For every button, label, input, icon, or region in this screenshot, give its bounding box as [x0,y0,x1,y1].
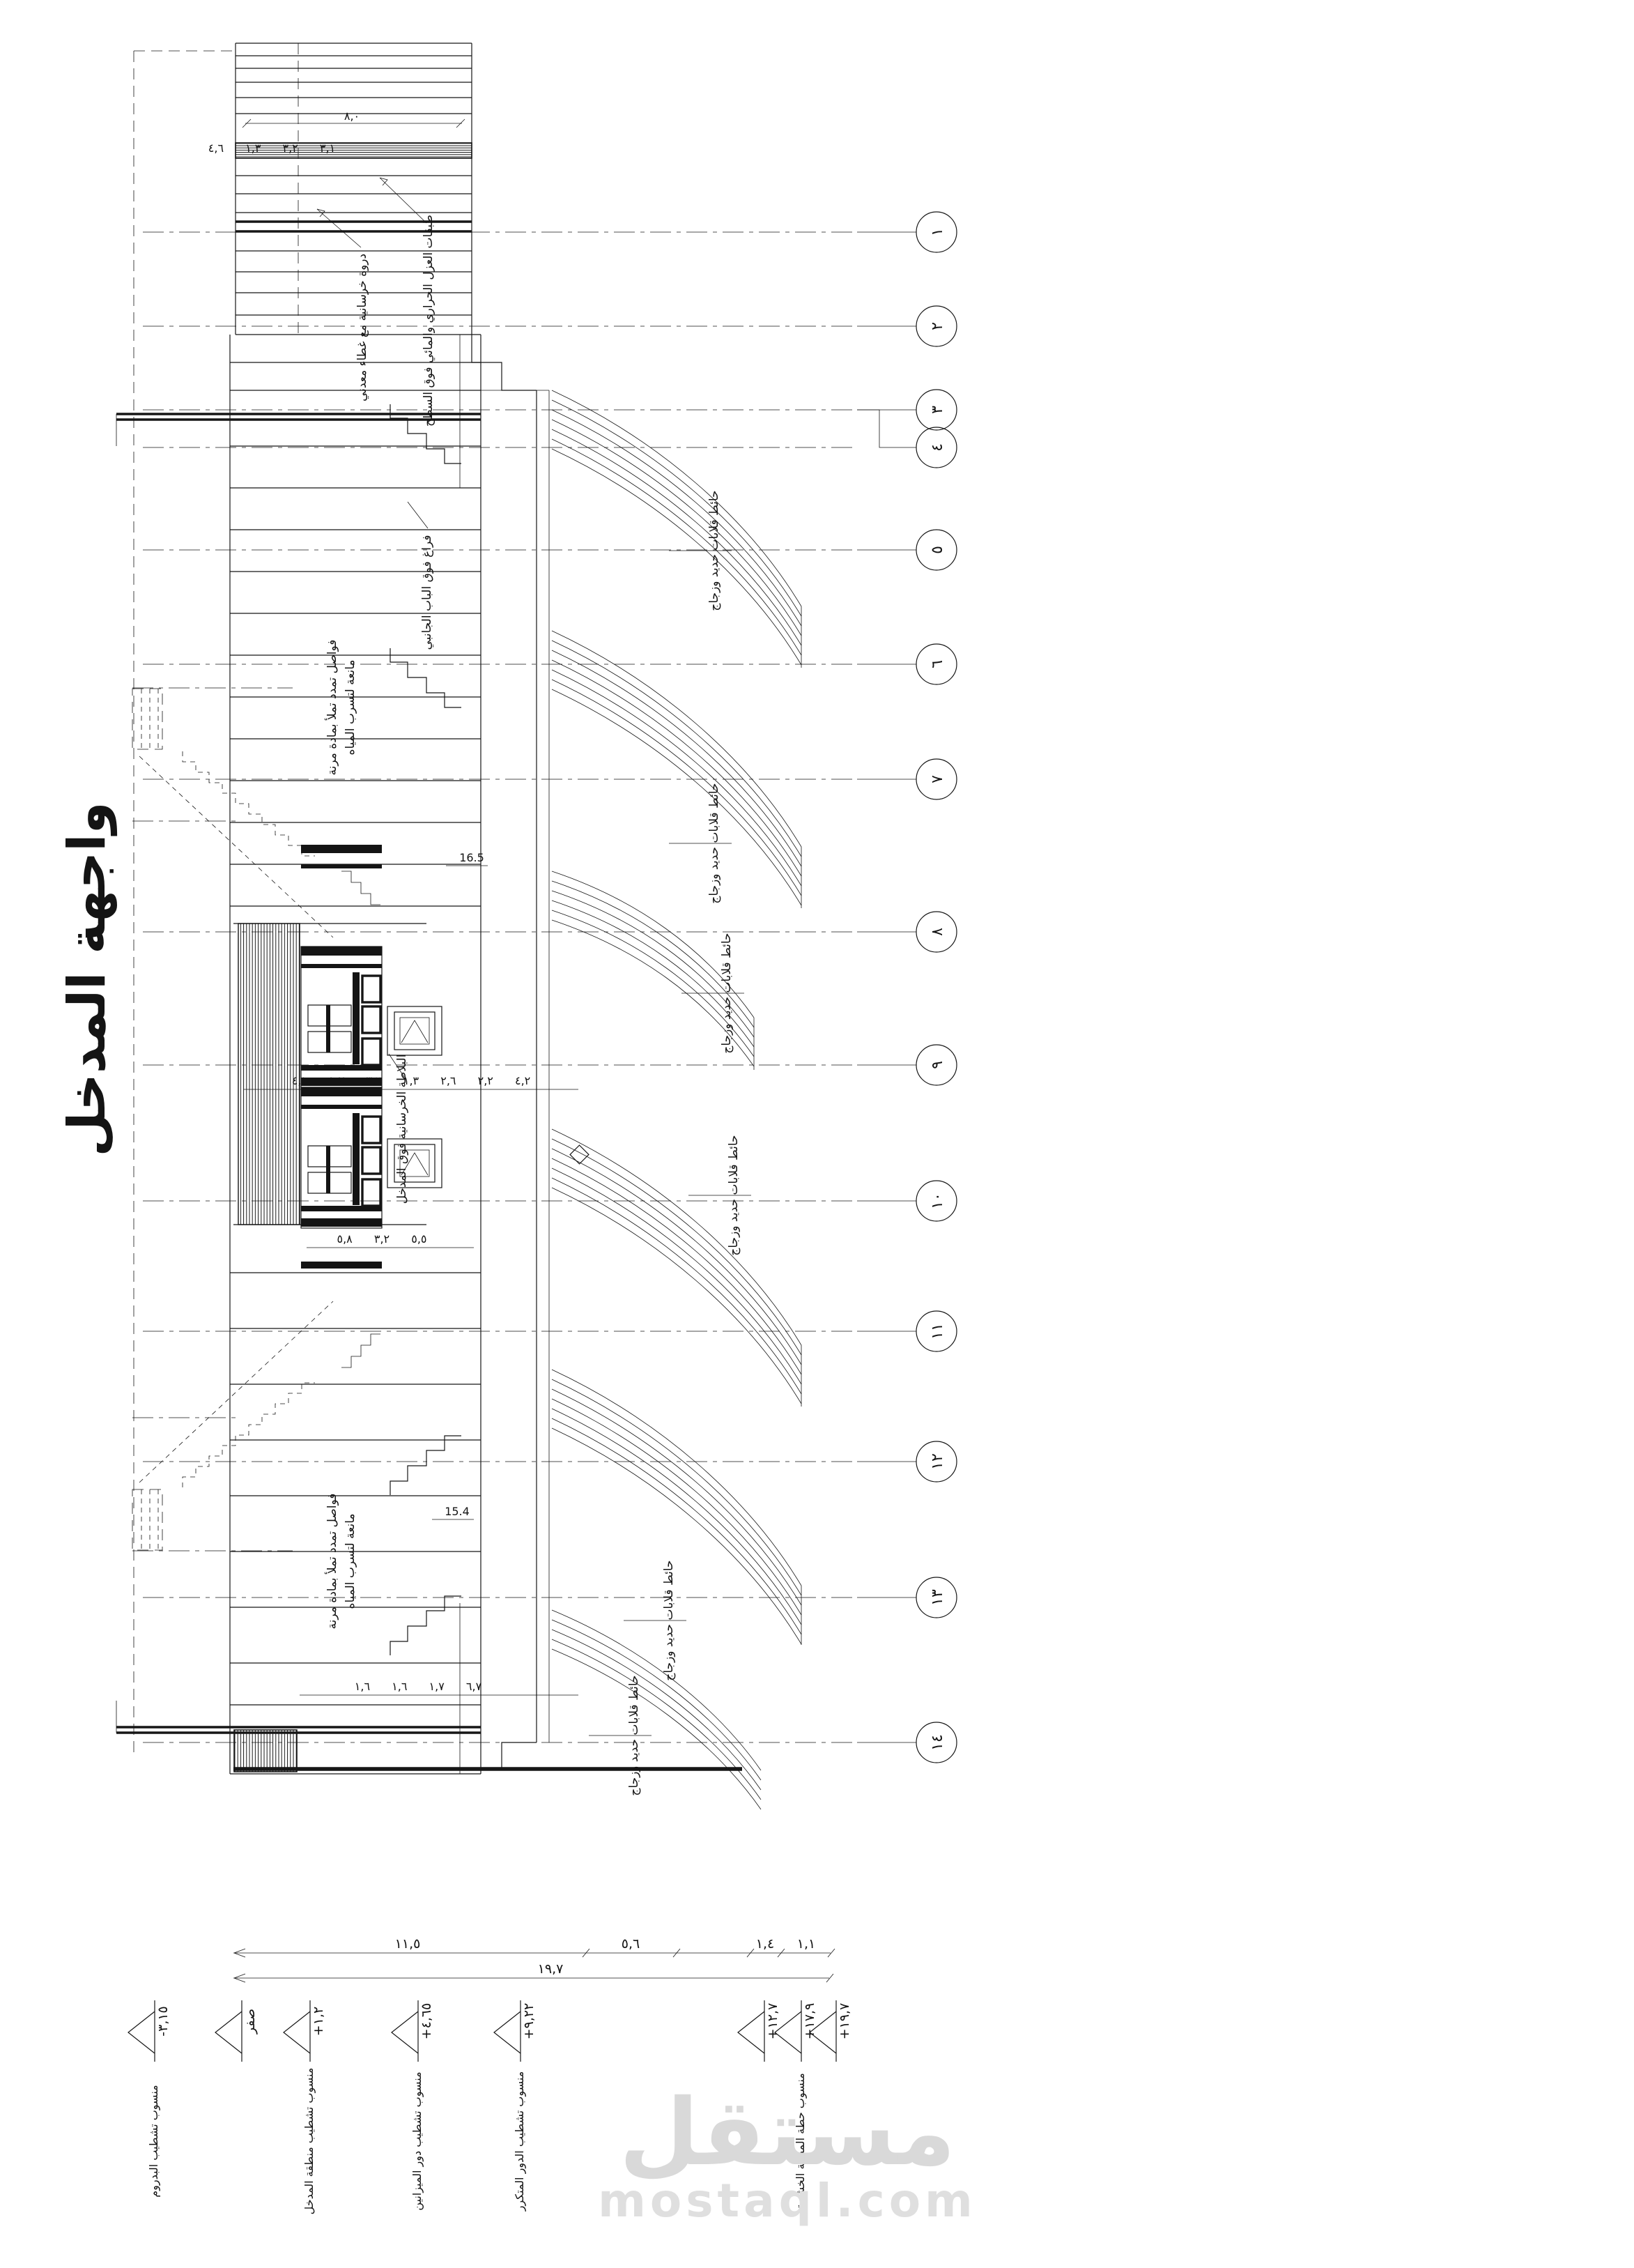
grid-bubble-label: ١٣ [929,1589,946,1606]
louver-wall-label: حائط قلابات حديد وزجاج [627,1675,641,1795]
annotation-expansion-joint: مانعة لتسرب المياه [344,1514,357,1609]
level-desc: منسوب تشطيب البدروم [147,2085,161,2197]
grid-bubble-label: ١٤ [929,1734,946,1751]
dim-lower-chain: ٦,٧ ١,٧ ١,٦ ١,٦ [355,1680,482,1693]
dim-row1-2: ٥,٦ [622,1936,640,1952]
annotation-entrance-slab: البلاطة الخرسانية فوق المدخل [395,1055,409,1204]
sheet-title: واجهة المدخل [57,802,118,1156]
level-desc: منسوب تشطيب منطقة المدخل [302,2068,316,2215]
grid-bubble-label: ٩ [929,1061,946,1069]
louver-wall-label: حائط قلابات حديد وزجاج [720,933,734,1053]
level-value: صفر [242,2009,258,2035]
watermark: مستقل mostaql.com [598,2079,977,2228]
grid-bubble-label: ٢ [929,322,946,330]
level-value: +١٢,٧ [765,2003,780,2040]
grid-bubble-label: ٦ [929,660,946,668]
level-value: +٩,٢٢ [521,2003,537,2040]
drawing-canvas: واجهة المدخل [0,0,1634,2268]
dim-level-low: 15.4 [445,1505,470,1518]
grid-bubble-label: ٣ [929,406,946,414]
annotation-roof-insulation: طبقات العزل الحراري والمائي فوق السطح [422,215,436,427]
dim-overall-width: ١٩,٧ [538,1961,564,1977]
louver-wall-label: حائط قلابات حديد وزجاج [727,1135,741,1255]
dim-top-chain: ٣,١ ٣,٢ ١,٣ ٤,٦ [208,141,335,155]
dim-row1-4: ١,١ [797,1936,815,1952]
level-value: +١٩,٧ [837,2003,852,2040]
grid-bubble-label: ١٠ [929,1193,946,1209]
grid-bubble-label: ٧ [929,775,946,783]
level-value: +١,٢ [311,2007,326,2036]
annotation-parapet-cladding: دروة خرسانية مع غطاء معدني [355,254,369,401]
annotation-expansion-joint: مانعة لتسرب المياه [344,660,357,756]
page-title: واجهة المدخل [57,802,118,1156]
annotation-expansion-joint: فواصل تمدد تملأ بمادة مرنة [325,640,339,776]
grid-bubble-label: ١١ [929,1323,946,1340]
louver-wall-label: حائط قلابات حديد وزجاج [707,490,721,611]
grid-bubble-label: ٥ [929,546,946,554]
grid-bubble-label: ١ [929,228,946,236]
level-value: +٤,٦٥ [419,2003,434,2040]
louver-wall-label: حائط قلابات حديد وزجاج [662,1560,676,1680]
dim-level-mid: 16.5 [459,851,484,864]
dim-tower-width: ٨,٠ [344,109,360,123]
grid-bubble-label: ١٢ [929,1453,946,1470]
watermark-domain: mostaql.com [598,2174,977,2228]
level-value: -٣,١٥ [155,2006,171,2037]
dim-portal-chain2: ٥,٥ ٣,٢ ٥,٨ [337,1232,426,1246]
hatched-pier [234,1730,297,1772]
dim-row1-3: ١,٤ [756,1936,774,1952]
watermark-logo: مستقل [619,2079,956,2186]
louver-wall-label: حائط قلابات حديد وزجاج [707,783,721,903]
dim-row1-1: ١١,٥ [395,1936,421,1952]
grid-bubble-label: ٤ [929,443,946,452]
annotation-side-door-void: فراغ فوق الباب الجانبي [420,535,434,650]
portal-louver-band [238,924,300,1225]
grid-bubble-label: ٨ [929,928,946,936]
level-desc: منسوب تشطيب دور الميزانين [410,2071,424,2210]
dim-portal-chain: ٤,٢ ٢,٢ ٢,٦ ١,٣ ٣,٦ ١,٧ ٤,١ [292,1074,531,1087]
annotation-expansion-joint: فواصل تمدد تملأ بمادة مرنة [325,1494,339,1630]
level-value: +١٧,٩ [802,2003,817,2040]
level-desc: منسوب تشطيب الدور المتكرر [513,2071,527,2212]
